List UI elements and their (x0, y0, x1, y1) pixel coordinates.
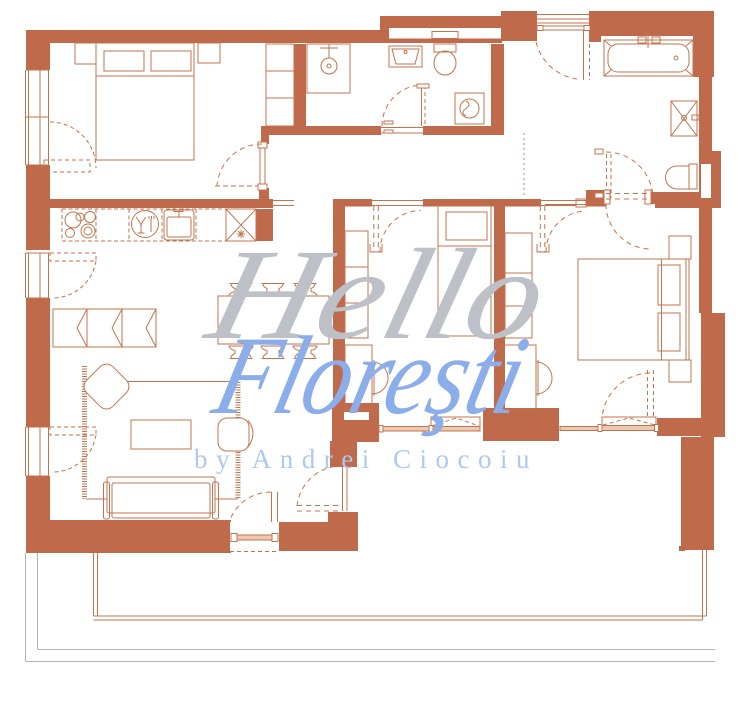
svg-text:Floreşti: Floreşti (203, 314, 540, 438)
svg-text:by Andrei Ciocoiu: by Andrei Ciocoiu (194, 444, 538, 474)
